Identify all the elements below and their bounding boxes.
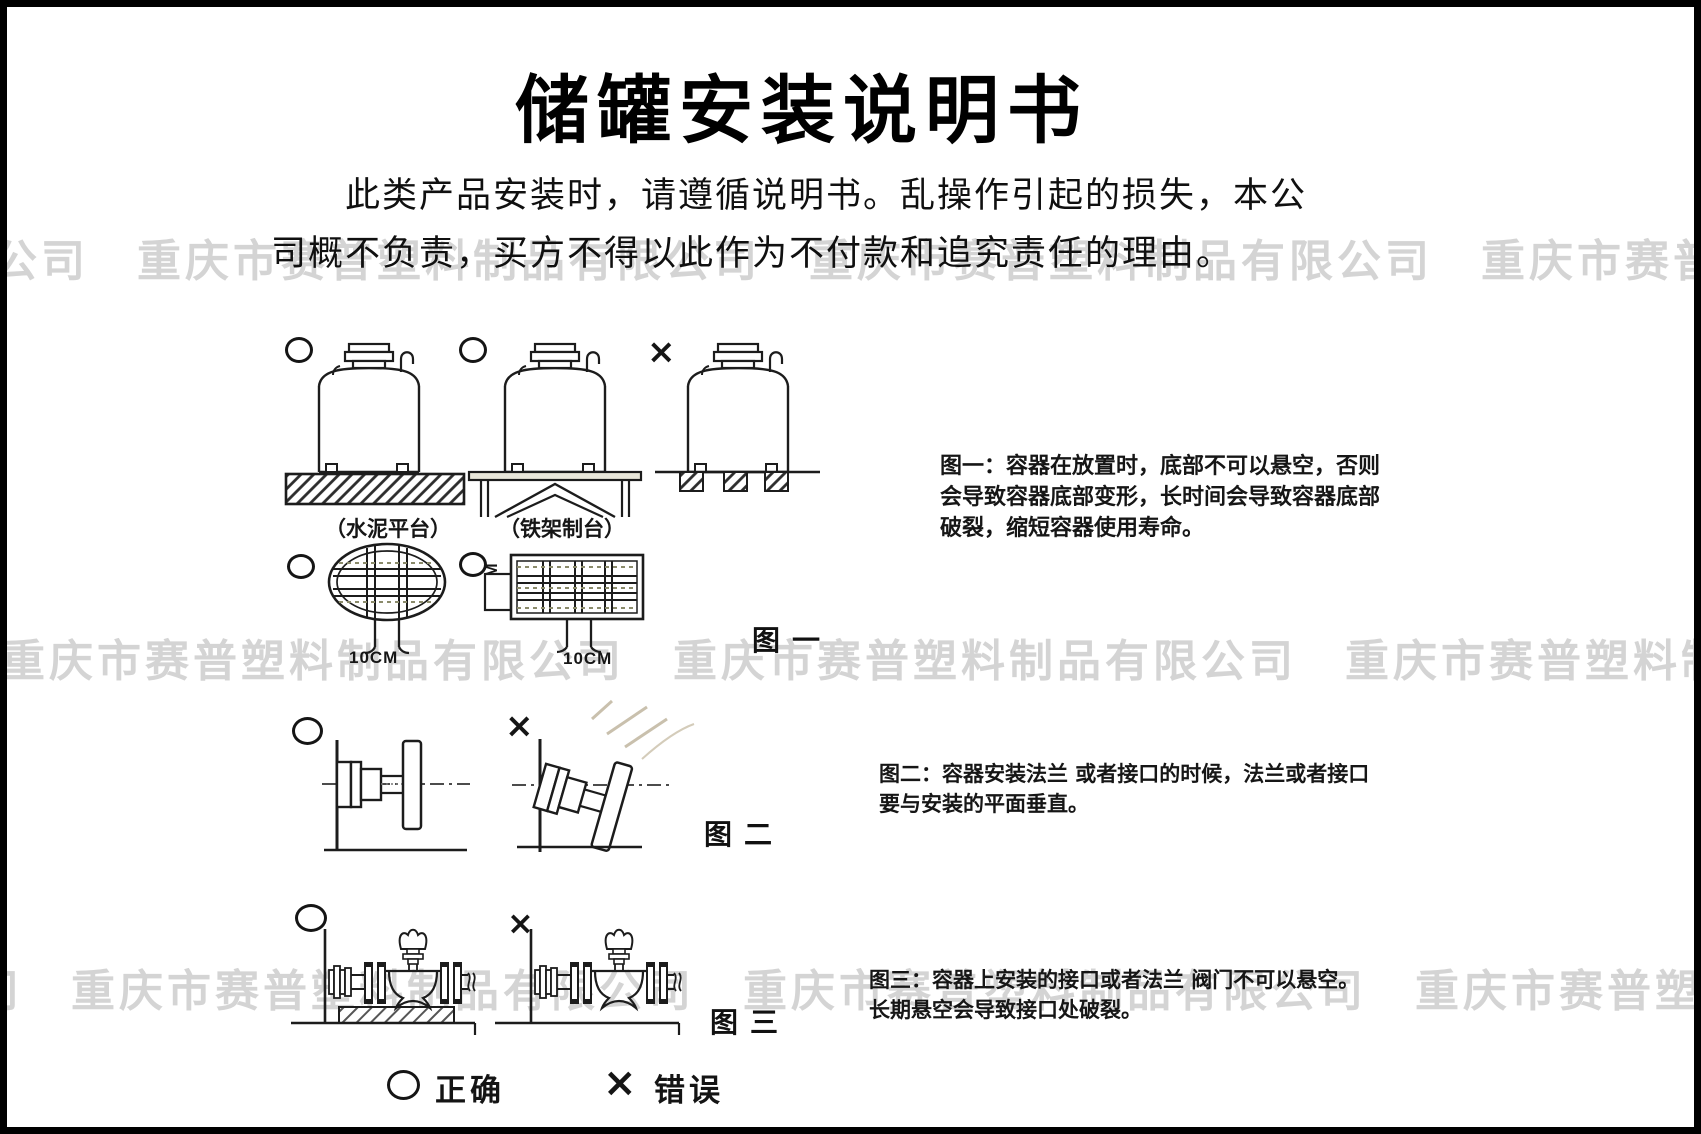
valve-suspended-drawing [493, 929, 683, 1039]
correct-mark-icon [292, 717, 323, 745]
page-title: 储罐安装说明书 [257, 51, 1347, 158]
tank-drawing-iron-frame [499, 344, 611, 474]
cement-platform-label: （水泥平台） [325, 513, 451, 543]
flange-correct-drawing [322, 732, 472, 857]
legend-wrong-label: 错误 [654, 1065, 724, 1110]
correct-mark-icon [459, 337, 487, 363]
intro-line-2: 司概不负责，买方不得以此作为不付款和追究责任的理由。 [271, 225, 1233, 276]
correct-mark-icon [287, 554, 315, 579]
dimension-label: 10CM [349, 648, 398, 668]
watermark-row: 公司 重庆市赛普塑料制品有限公司 重庆市赛普塑料制品有限公司 重庆市赛普塑料制品… [0, 625, 1701, 689]
correct-mark-icon [295, 904, 327, 932]
tank-drawing-suspended [682, 344, 794, 474]
figure3-caption: 图三 [710, 1001, 790, 1041]
figure1-description: 图一：容器在放置时，底部不可以悬空，否则 会导致容器底部变形，长时间会导致容器底… [940, 451, 1450, 544]
figure1-caption: 图一 [752, 619, 832, 659]
legend-correct-icon [387, 1070, 420, 1100]
iron-platform-label: （铁架制台） [499, 513, 625, 543]
figure2-description: 图二：容器安装法兰 或者接口的时候，法兰或者接口 要与安装的平面垂直。 [879, 759, 1439, 819]
wrong-mark-icon: × [647, 335, 676, 369]
figure3-description: 图三：容器上安装的接口或者法兰 阀门不可以悬空。 长期悬空会导致接口处破裂。 [869, 965, 1429, 1025]
dimension-label: 10CM [563, 649, 612, 669]
figure2-caption: 图二 [704, 813, 784, 853]
flange-wrong-drawing [512, 689, 677, 859]
legend-wrong-icon: × [603, 1063, 637, 1103]
valve-supported-drawing [289, 929, 479, 1039]
intro-line-1: 此类产品安装时，请遵循说明书。乱操作引起的损失，本公 [345, 167, 1307, 218]
correct-mark-icon [285, 337, 313, 363]
watermark-row: 公司 重庆市赛普塑料制品有限公司 重庆市赛普塑料制品有限公司 重庆市赛普塑料制品… [0, 955, 1701, 1019]
round-base-grid-drawing [325, 542, 449, 657]
legend-correct-label: 正确 [435, 1065, 505, 1110]
cement-platform-drawing [285, 472, 465, 508]
pier-blocks-drawing [655, 470, 820, 496]
rect-base-grid-drawing [483, 552, 648, 652]
tank-drawing-cement [313, 344, 425, 474]
instruction-sheet: 公司 重庆市赛普塑料制品有限公司 重庆市赛普塑料制品有限公司 重庆市赛普塑料制品… [0, 0, 1701, 1134]
